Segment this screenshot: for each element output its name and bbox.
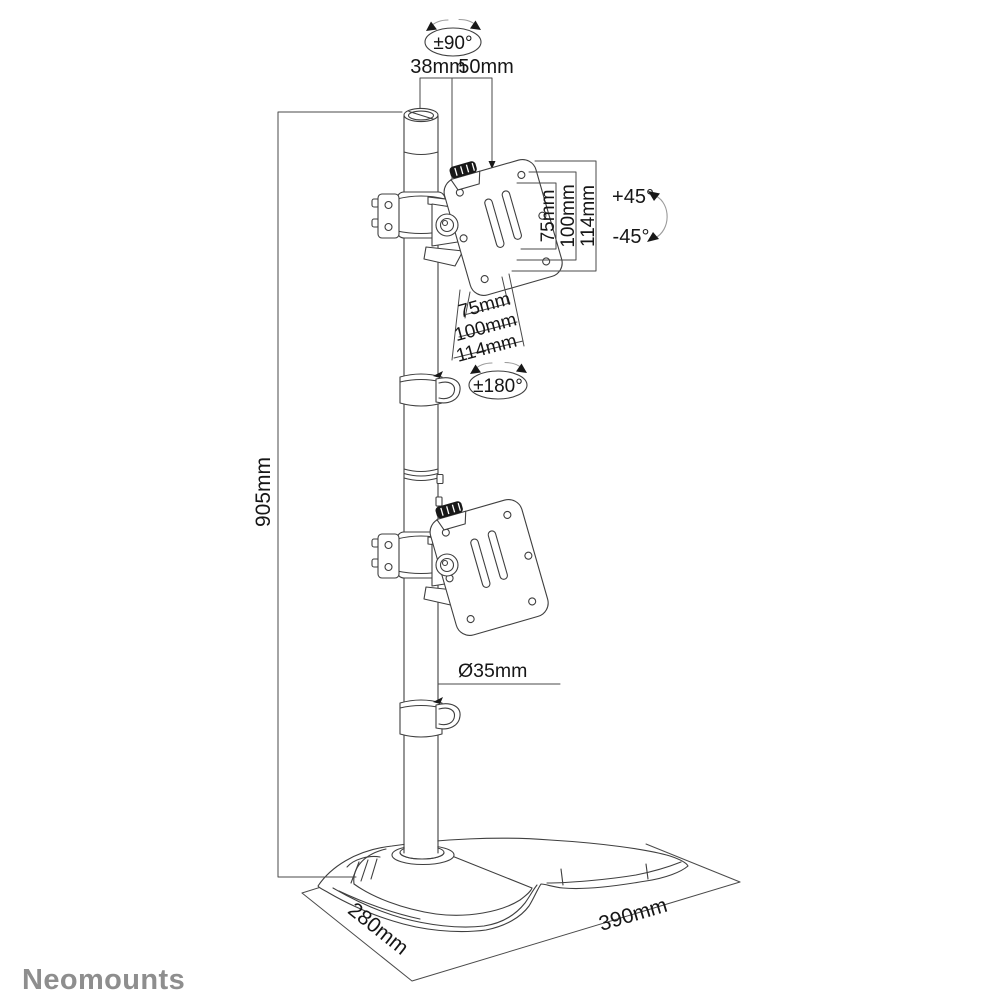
rotation-callout: ±180° xyxy=(469,363,527,400)
upper-collar-clamp xyxy=(400,371,460,406)
tilt-down-label: -45° xyxy=(613,226,650,248)
height-label: 905mm xyxy=(252,457,275,527)
pole-diameter-label: Ø35mm xyxy=(458,660,527,682)
pole-diameter-dimension: Ø35mm xyxy=(438,660,560,684)
lower-vesa-assembly xyxy=(372,485,551,639)
lower-collar-clamp xyxy=(400,697,460,737)
swivel-angle-label: ±90° xyxy=(433,33,472,54)
upper-vesa-assembly xyxy=(372,145,565,299)
tilt-up-label: +45° xyxy=(612,186,654,208)
rotation-angle-label: ±180° xyxy=(473,376,523,397)
brand-logo: Neomounts xyxy=(22,964,185,996)
collar-handle xyxy=(436,704,460,729)
monitor-stand-dimension-diagram: 38mm 50mm xyxy=(0,0,1004,1004)
dim-50mm-label: 50mm xyxy=(458,56,514,78)
tilt-callout: +45° -45° xyxy=(612,186,667,248)
pole-tab xyxy=(437,475,443,484)
technical-drawing-page: 38mm 50mm xyxy=(0,0,1004,1004)
base-width-label: 390mm xyxy=(596,894,670,936)
collar-handle xyxy=(436,378,460,403)
vesa-v-114-label: 114mm xyxy=(578,185,599,247)
vesa-v-100-label: 100mm xyxy=(558,184,579,247)
vesa-v-75-label: 75mm xyxy=(538,190,559,243)
pole-tab xyxy=(436,497,442,506)
swivel-callout: ±90° xyxy=(425,20,481,57)
